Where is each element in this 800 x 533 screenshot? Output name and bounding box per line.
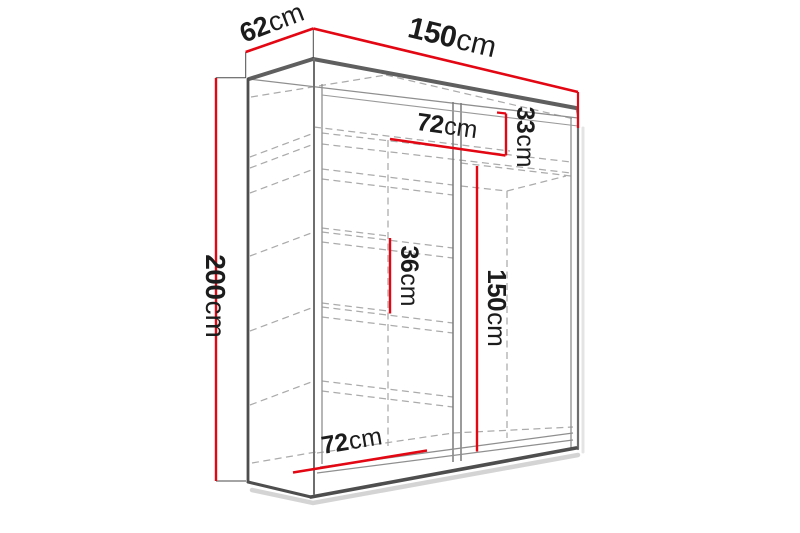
top-back-edge (313, 59, 576, 108)
top-left-edge (249, 59, 313, 79)
hanging-height-label: 150cm (482, 269, 512, 347)
shelf-width-top-dimension-line (390, 139, 506, 156)
height-dimension-label: 200cm (200, 254, 231, 338)
shelf-gap-label: 36cm (395, 245, 423, 306)
depth-dimension-label: 62cm (236, 0, 308, 48)
wardrobe-diagram-canvas: 62cm 150cm 200cm 72cm 33cm 36cm 150cm 72… (0, 0, 800, 533)
wardrobe-dimension-diagram: 62cm 150cm 200cm 72cm 33cm 36cm 150cm 72… (0, 0, 800, 533)
shelf-width-bottom-label: 72cm (319, 422, 384, 460)
top-shelf-height-tick (497, 113, 506, 114)
top-shelf-height-label: 33cm (511, 106, 539, 167)
width-dimension-label: 150cm (405, 11, 500, 64)
